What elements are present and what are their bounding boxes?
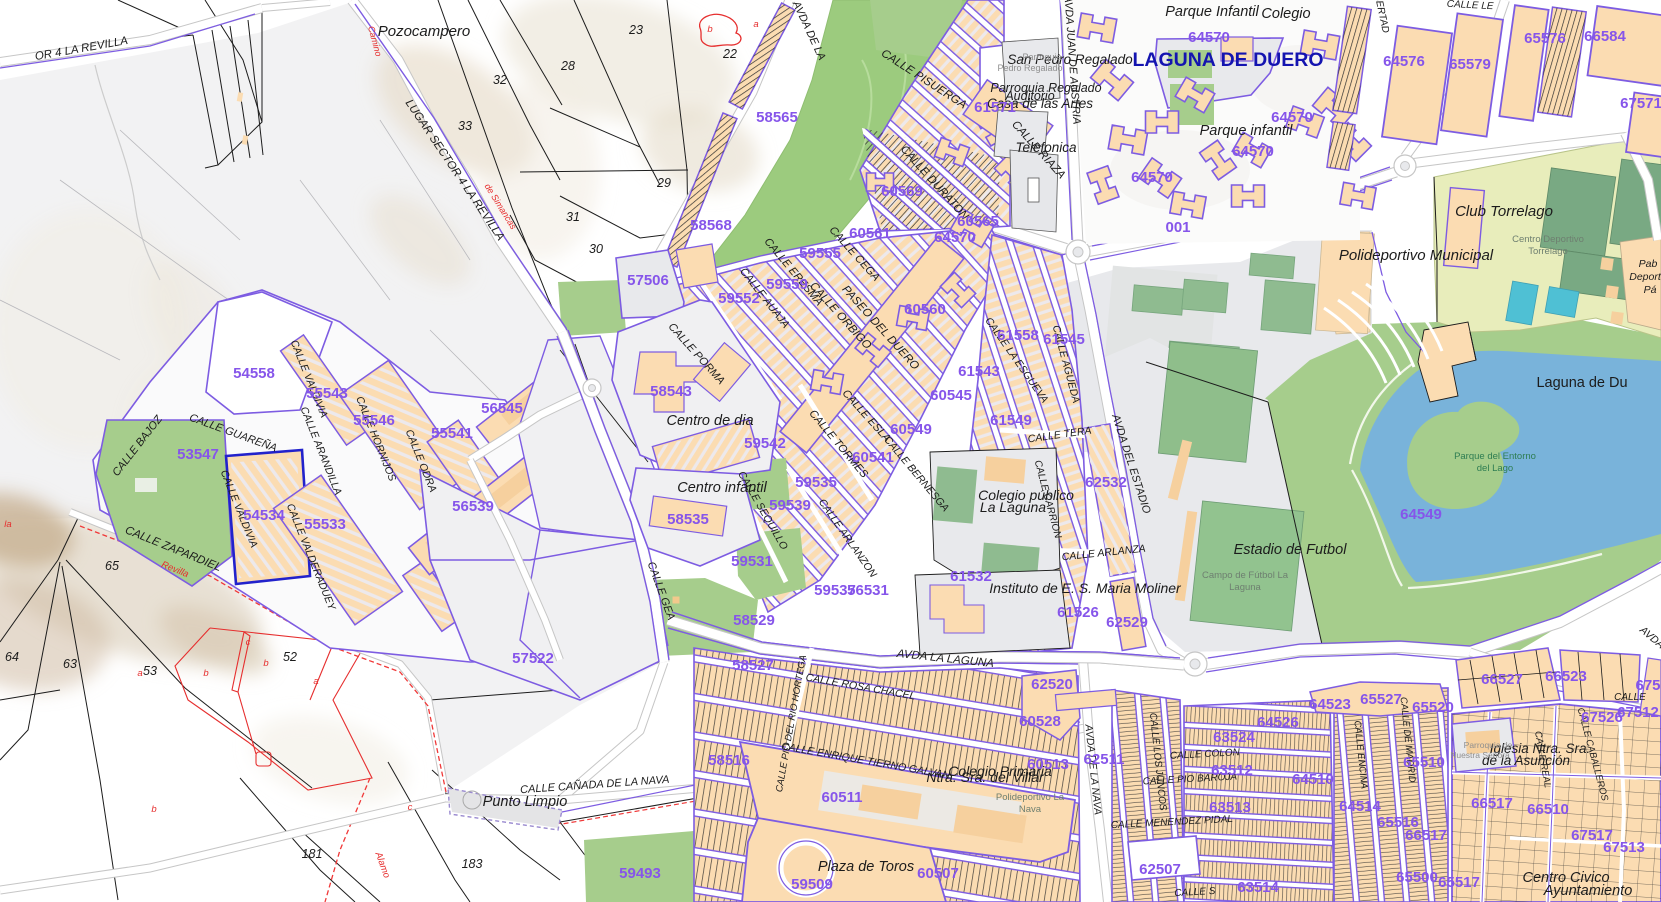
svg-text:61532: 61532 xyxy=(950,568,992,585)
svg-text:62507: 62507 xyxy=(1139,861,1181,878)
svg-text:La Laguna: La Laguna xyxy=(980,499,1046,515)
svg-text:Estadio de Futbol: Estadio de Futbol xyxy=(1234,542,1348,558)
svg-text:63524: 63524 xyxy=(1213,729,1255,746)
svg-text:Parroquia de: Parroquia de xyxy=(1464,740,1513,750)
svg-text:67571: 67571 xyxy=(1620,95,1661,112)
svg-text:Nuestra Señora: Nuestra Señora xyxy=(1450,750,1510,760)
svg-text:Telefonica: Telefonica xyxy=(1015,140,1077,155)
svg-text:59509: 59509 xyxy=(791,876,833,893)
svg-text:59531: 59531 xyxy=(731,553,773,570)
svg-text:Pab: Pab xyxy=(1639,258,1658,270)
svg-text:62520: 62520 xyxy=(1031,676,1073,693)
svg-text:Torrelago: Torrelago xyxy=(1528,246,1568,257)
svg-text:58543: 58543 xyxy=(650,383,692,400)
svg-text:61549: 61549 xyxy=(990,412,1032,429)
svg-text:Parque Infantil: Parque Infantil xyxy=(1165,4,1259,20)
svg-text:55546: 55546 xyxy=(353,412,395,429)
svg-text:22: 22 xyxy=(722,47,737,61)
svg-text:60507: 60507 xyxy=(917,865,959,882)
svg-text:28: 28 xyxy=(560,59,575,73)
svg-text:32: 32 xyxy=(493,73,507,87)
svg-text:Punto Limpio: Punto Limpio xyxy=(483,794,568,810)
svg-text:61545: 61545 xyxy=(1043,331,1085,348)
svg-text:56545: 56545 xyxy=(481,400,523,417)
svg-text:57522: 57522 xyxy=(512,650,554,667)
svg-text:del Lago: del Lago xyxy=(1477,463,1513,474)
svg-text:63: 63 xyxy=(63,657,77,671)
svg-text:Polideportivo Municipal: Polideportivo Municipal xyxy=(1339,247,1494,264)
svg-text:23: 23 xyxy=(628,23,643,37)
svg-text:CALLE S: CALLE S xyxy=(1174,886,1216,899)
svg-text:65517: 65517 xyxy=(1438,874,1480,891)
svg-text:Parque del Entorno: Parque del Entorno xyxy=(1454,451,1536,462)
svg-text:60549: 60549 xyxy=(890,421,932,438)
svg-text:66517: 66517 xyxy=(1405,827,1447,844)
svg-text:63514: 63514 xyxy=(1237,879,1279,896)
svg-text:54558: 54558 xyxy=(233,365,275,382)
svg-text:61558: 61558 xyxy=(997,327,1039,344)
svg-text:Pá: Pá xyxy=(1644,284,1657,296)
svg-text:60561: 60561 xyxy=(849,225,891,242)
svg-text:62511: 62511 xyxy=(1084,751,1125,768)
svg-text:64510: 64510 xyxy=(1292,771,1334,788)
svg-text:59555: 59555 xyxy=(799,245,841,262)
svg-text:65: 65 xyxy=(105,559,119,573)
svg-text:65579: 65579 xyxy=(1449,56,1491,73)
svg-text:66523: 66523 xyxy=(1545,668,1587,685)
svg-text:58568: 58568 xyxy=(690,217,732,234)
svg-text:62529: 62529 xyxy=(1106,614,1148,631)
svg-text:Centro de dia: Centro de dia xyxy=(666,413,753,429)
svg-text:64576: 64576 xyxy=(1383,53,1425,70)
svg-text:183: 183 xyxy=(462,857,483,871)
svg-text:66527: 66527 xyxy=(1481,671,1523,688)
svg-text:a: a xyxy=(313,676,318,687)
svg-text:Club Torrelago: Club Torrelago xyxy=(1455,203,1553,220)
svg-text:60511: 60511 xyxy=(822,789,863,806)
svg-text:64570: 64570 xyxy=(1271,109,1313,126)
svg-text:Campo de Fútbol La: Campo de Fútbol La xyxy=(1202,570,1289,581)
svg-text:61543: 61543 xyxy=(958,363,1000,380)
svg-text:56539: 56539 xyxy=(452,498,494,515)
svg-text:66517: 66517 xyxy=(1471,795,1513,812)
svg-text:60565: 60565 xyxy=(957,213,999,230)
svg-text:64514: 64514 xyxy=(1339,798,1381,815)
svg-text:64570: 64570 xyxy=(934,229,976,246)
svg-text:67512: 67512 xyxy=(1617,704,1659,721)
svg-text:LAGUNA DE DUERO: LAGUNA DE DUERO xyxy=(1132,49,1323,71)
svg-text:b: b xyxy=(151,804,156,815)
svg-text:30: 30 xyxy=(589,242,603,256)
svg-text:66584: 66584 xyxy=(1584,28,1626,45)
svg-text:56531: 56531 xyxy=(847,582,889,599)
svg-text:b: b xyxy=(263,658,268,669)
svg-text:53547: 53547 xyxy=(177,446,219,463)
svg-text:Pozocampero: Pozocampero xyxy=(378,23,471,40)
svg-text:Ayuntamiento: Ayuntamiento xyxy=(1543,883,1633,899)
svg-text:59552: 59552 xyxy=(718,290,760,307)
svg-text:52: 52 xyxy=(283,650,297,664)
svg-text:62532: 62532 xyxy=(1085,474,1127,491)
svg-text:60541: 60541 xyxy=(852,449,894,466)
svg-text:59493: 59493 xyxy=(619,865,661,882)
svg-text:675: 675 xyxy=(1635,677,1660,694)
svg-text:58535: 58535 xyxy=(667,511,709,528)
svg-text:58527: 58527 xyxy=(732,657,774,674)
svg-text:Parroquia: Parroquia xyxy=(1022,52,1061,62)
svg-text:b: b xyxy=(203,668,208,679)
svg-text:Plaza de Toros: Plaza de Toros xyxy=(818,859,914,875)
svg-text:Centro Deportivo: Centro Deportivo xyxy=(1512,234,1584,245)
svg-text:64570: 64570 xyxy=(1131,169,1173,186)
svg-text:59542: 59542 xyxy=(744,435,786,452)
svg-text:a: a xyxy=(753,19,758,30)
svg-text:60528: 60528 xyxy=(1019,713,1061,730)
svg-text:c: c xyxy=(408,802,413,813)
svg-text:c: c xyxy=(246,637,251,648)
svg-text:66510: 66510 xyxy=(1527,801,1569,818)
svg-text:Nava: Nava xyxy=(1019,804,1042,815)
svg-text:Polideportivo La: Polideportivo La xyxy=(996,792,1065,803)
svg-text:Deport: Deport xyxy=(1629,271,1661,283)
svg-text:64549: 64549 xyxy=(1400,506,1442,523)
svg-text:33: 33 xyxy=(458,119,472,133)
svg-text:60513: 60513 xyxy=(1027,756,1069,773)
svg-text:la: la xyxy=(4,519,11,530)
svg-text:54534: 54534 xyxy=(243,507,285,524)
svg-text:65576: 65576 xyxy=(1524,30,1566,47)
svg-text:55541: 55541 xyxy=(431,425,473,442)
svg-text:Centro infantil: Centro infantil xyxy=(677,480,767,496)
svg-text:63512: 63512 xyxy=(1211,762,1253,779)
svg-text:60569: 60569 xyxy=(881,183,923,200)
svg-text:59539: 59539 xyxy=(769,497,811,514)
svg-text:65520: 65520 xyxy=(1412,699,1454,716)
svg-text:64: 64 xyxy=(5,650,19,664)
svg-text:67513: 67513 xyxy=(1603,839,1645,856)
svg-text:61571: 61571 xyxy=(974,99,1016,116)
svg-text:60545: 60545 xyxy=(930,387,972,404)
svg-text:65527: 65527 xyxy=(1360,691,1402,708)
svg-text:29: 29 xyxy=(656,176,671,190)
svg-text:64526: 64526 xyxy=(1257,714,1299,731)
svg-text:001: 001 xyxy=(1165,219,1190,236)
svg-text:58565: 58565 xyxy=(756,109,798,126)
svg-text:55543: 55543 xyxy=(306,385,348,402)
svg-text:Colegio: Colegio xyxy=(1261,6,1310,22)
svg-text:64570: 64570 xyxy=(1232,143,1274,160)
svg-text:58529: 58529 xyxy=(733,612,775,629)
svg-text:Laguna de Du: Laguna de Du xyxy=(1536,375,1627,391)
svg-text:65500: 65500 xyxy=(1396,869,1438,886)
svg-text:181: 181 xyxy=(302,847,323,861)
svg-text:59559: 59559 xyxy=(766,276,808,293)
svg-text:63513: 63513 xyxy=(1209,799,1251,816)
svg-text:60560: 60560 xyxy=(904,301,946,318)
svg-text:Laguna: Laguna xyxy=(1229,582,1261,593)
svg-text:65510: 65510 xyxy=(1403,754,1445,771)
svg-text:Instituto de E. S. Maria Molin: Instituto de E. S. Maria Moliner xyxy=(989,580,1182,596)
svg-text:53: 53 xyxy=(143,664,157,678)
svg-text:64570: 64570 xyxy=(1188,29,1230,46)
svg-text:61526: 61526 xyxy=(1057,604,1099,621)
svg-text:57506: 57506 xyxy=(627,272,669,289)
svg-text:59535: 59535 xyxy=(795,474,837,491)
svg-text:55533: 55533 xyxy=(304,516,346,533)
svg-text:b: b xyxy=(707,24,712,35)
svg-text:31: 31 xyxy=(566,210,580,224)
svg-text:Pedro Regalado: Pedro Regalado xyxy=(997,63,1062,73)
svg-text:58516: 58516 xyxy=(708,752,750,769)
svg-text:64523: 64523 xyxy=(1309,696,1351,713)
svg-text:a: a xyxy=(137,668,142,679)
